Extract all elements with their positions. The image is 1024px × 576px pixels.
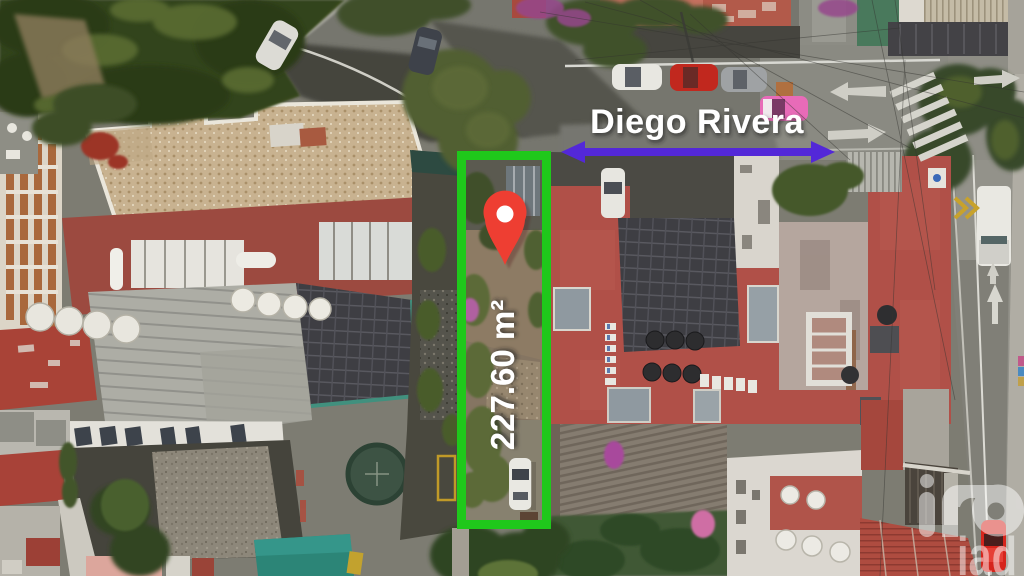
svg-text:Diego Rivera: Diego Rivera xyxy=(590,103,804,141)
svg-text:227.60 m²: 227.60 m² xyxy=(484,300,521,450)
svg-text:iad: iad xyxy=(957,525,1017,576)
